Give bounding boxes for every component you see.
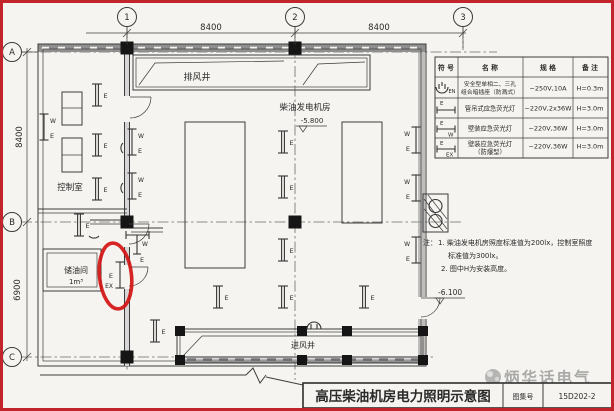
legend-header-name: 名 称	[482, 63, 498, 72]
svg-text:EN: EN	[449, 89, 456, 95]
svg-text:E: E	[290, 139, 294, 147]
dim-label-top-left: 8400	[200, 23, 222, 33]
svg-text:E: E	[104, 186, 108, 194]
svg-text:E: E	[138, 191, 142, 199]
svg-text:E: E	[371, 294, 375, 302]
grid-bubble-3: 3	[460, 13, 465, 23]
room-label-control-room: 控制室	[57, 182, 83, 193]
dim-label-top-right: 8400	[368, 23, 390, 33]
title-block: 高压柴油机房电力照明示意图 图集号 15D202-2	[303, 383, 612, 408]
notes-label: 注：	[423, 238, 437, 247]
legend-r4-spec: ~220V,36W	[528, 143, 568, 151]
svg-text:W: W	[448, 133, 454, 139]
legend-r3-spec: ~220V,36W	[528, 125, 568, 133]
svg-text:E: E	[104, 92, 108, 100]
legend-r3-name: 壁装应急荧光灯	[468, 124, 513, 133]
legend-r1-name: 安全型单相二、三孔	[464, 80, 516, 88]
svg-text:E: E	[225, 294, 229, 302]
legend-r2-note: H=3.0m	[576, 105, 603, 113]
svg-text:E: E	[290, 184, 294, 192]
legend-r4-name: 壁装应急荧光灯	[468, 139, 513, 148]
legend-r3-note: H=3.0m	[576, 125, 603, 133]
svg-text:E: E	[109, 272, 113, 280]
notes-line-3: 2. 图中H为安装高度。	[441, 264, 511, 273]
svg-text:E: E	[290, 247, 294, 255]
room-label-exhaust-shaft: 排风井	[183, 71, 210, 83]
svg-text:E: E	[138, 147, 142, 155]
svg-text:E: E	[140, 256, 144, 264]
svg-text:E: E	[440, 141, 444, 147]
svg-text:E: E	[406, 145, 410, 153]
notes-line-2: 标准值为300lx。	[448, 251, 502, 260]
grid-bubble-2: 2	[292, 13, 297, 23]
legend-header-spec: 规 格	[540, 63, 556, 72]
svg-text:E: E	[406, 255, 410, 263]
room-label-oil-room: 储油间	[64, 265, 88, 275]
svg-text:W: W	[142, 241, 148, 248]
svg-text:E: E	[290, 294, 294, 302]
legend-r2-spec: ~220V,2x36W	[524, 105, 572, 113]
svg-text:W: W	[138, 133, 144, 140]
screenshot-root: EEEEEEEEEEEWEWEWEWEWEWEEEXWE 8400 8400 8…	[0, 0, 614, 411]
svg-text:注：1. 柴油发电机房照度标准值为200lx，控制室照度: 注：1. 柴油发电机房照度标准值为200lx，控制室照度	[423, 238, 592, 247]
grid-bubble-b: B	[9, 218, 15, 228]
svg-text:E: E	[162, 328, 166, 336]
grid-bubble-a: A	[9, 48, 15, 58]
atlas-number: 15D202-2	[558, 392, 595, 401]
legend-r1-spec: ~250V,10A	[529, 85, 567, 93]
svg-text:E: E	[104, 142, 108, 150]
svg-text:-6.100: -6.100	[438, 288, 462, 297]
svg-text:W: W	[404, 179, 410, 186]
svg-text:-5.800: -5.800	[301, 117, 324, 125]
grid-bubble-1: 1	[124, 13, 129, 23]
dim-label-left-lower: 6900	[13, 279, 23, 301]
svg-text:EX: EX	[105, 283, 113, 290]
legend-r1-name2: 组合暗插座（防溅式）	[461, 88, 519, 96]
legend-header-symbol: 符 号	[438, 63, 454, 72]
svg-text:EX: EX	[446, 153, 453, 159]
legend-r4-name2: （防爆型）	[474, 147, 505, 156]
room-label-intake-shaft: 进风井	[291, 340, 315, 350]
dim-label-left-upper: 8400	[15, 126, 25, 148]
svg-text:E: E	[50, 132, 54, 140]
oil-room-volume: 1m³	[69, 278, 83, 286]
legend-r4-note: H=3.0m	[576, 143, 603, 151]
drawing-title: 高压柴油机房电力照明示意图	[315, 388, 491, 405]
room-label-generator-room: 柴油发电机房	[279, 102, 330, 113]
legend-r1-note: H=0.3m	[576, 85, 603, 93]
svg-text:W: W	[50, 118, 56, 125]
svg-text:E: E	[440, 101, 444, 107]
svg-text:E: E	[406, 193, 410, 201]
svg-text:W: W	[138, 177, 144, 184]
svg-text:E: E	[86, 222, 90, 230]
notes-line-1: 1. 柴油发电机房照度标准值为200lx，控制室照度	[438, 238, 592, 247]
floor-plan-drawing: EEEEEEEEEEEWEWEWEWEWEWEEEXWE 8400 8400 8…	[0, 0, 614, 411]
grid-bubble-c: C	[9, 353, 15, 363]
atlas-label: 图集号	[513, 392, 534, 401]
legend-header-note: 备 注	[581, 63, 598, 72]
svg-text:W: W	[404, 241, 410, 248]
legend-r2-name: 管吊式应急荧光灯	[465, 104, 516, 113]
svg-text:E: E	[440, 121, 444, 127]
svg-text:W: W	[404, 131, 410, 138]
